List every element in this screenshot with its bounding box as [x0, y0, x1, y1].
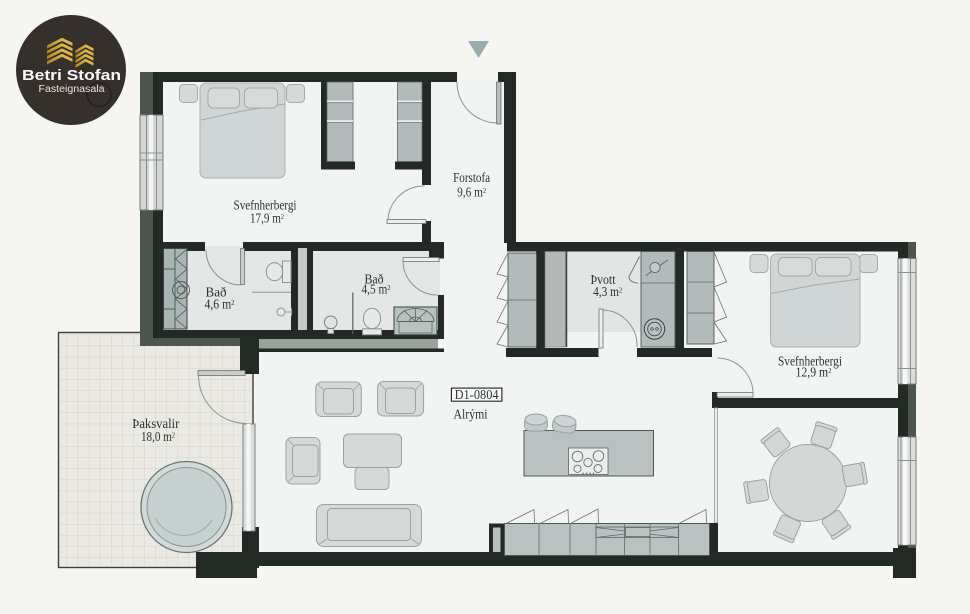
svg-text:12,9 m2: 12,9 m2 [796, 364, 832, 379]
svg-text:9,6 m2: 9,6 m2 [457, 184, 486, 199]
svg-text:4,6 m2: 4,6 m2 [205, 297, 235, 312]
svg-text:D1-0804: D1-0804 [455, 387, 499, 402]
svg-text:Betri Stofan: Betri Stofan [22, 67, 121, 84]
svg-text:Fasteignasala: Fasteignasala [39, 84, 105, 95]
svg-text:4,5 m2: 4,5 m2 [362, 282, 391, 297]
svg-text:Forstofa: Forstofa [453, 170, 490, 185]
svg-text:4,3 m2: 4,3 m2 [593, 284, 622, 299]
svg-text:17,9 m2: 17,9 m2 [250, 211, 284, 226]
svg-text:Alrými: Alrými [454, 407, 488, 422]
svg-text:18,0 m2: 18,0 m2 [141, 429, 175, 444]
